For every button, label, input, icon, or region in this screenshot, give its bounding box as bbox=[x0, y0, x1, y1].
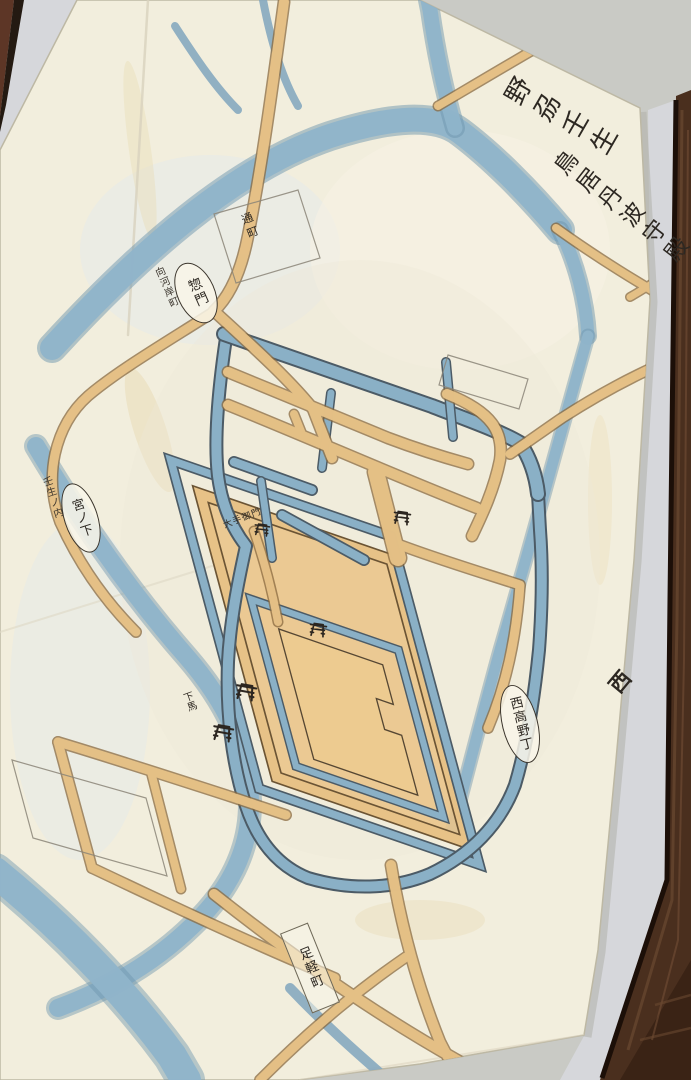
map-drawing bbox=[0, 0, 691, 1080]
framed-map-photo: 野刕壬生 鳥居丹波守殿 西 惣門 向河岸町 宮ノ下 壬生ノ内 西高野丁 通町 足… bbox=[0, 0, 691, 1080]
